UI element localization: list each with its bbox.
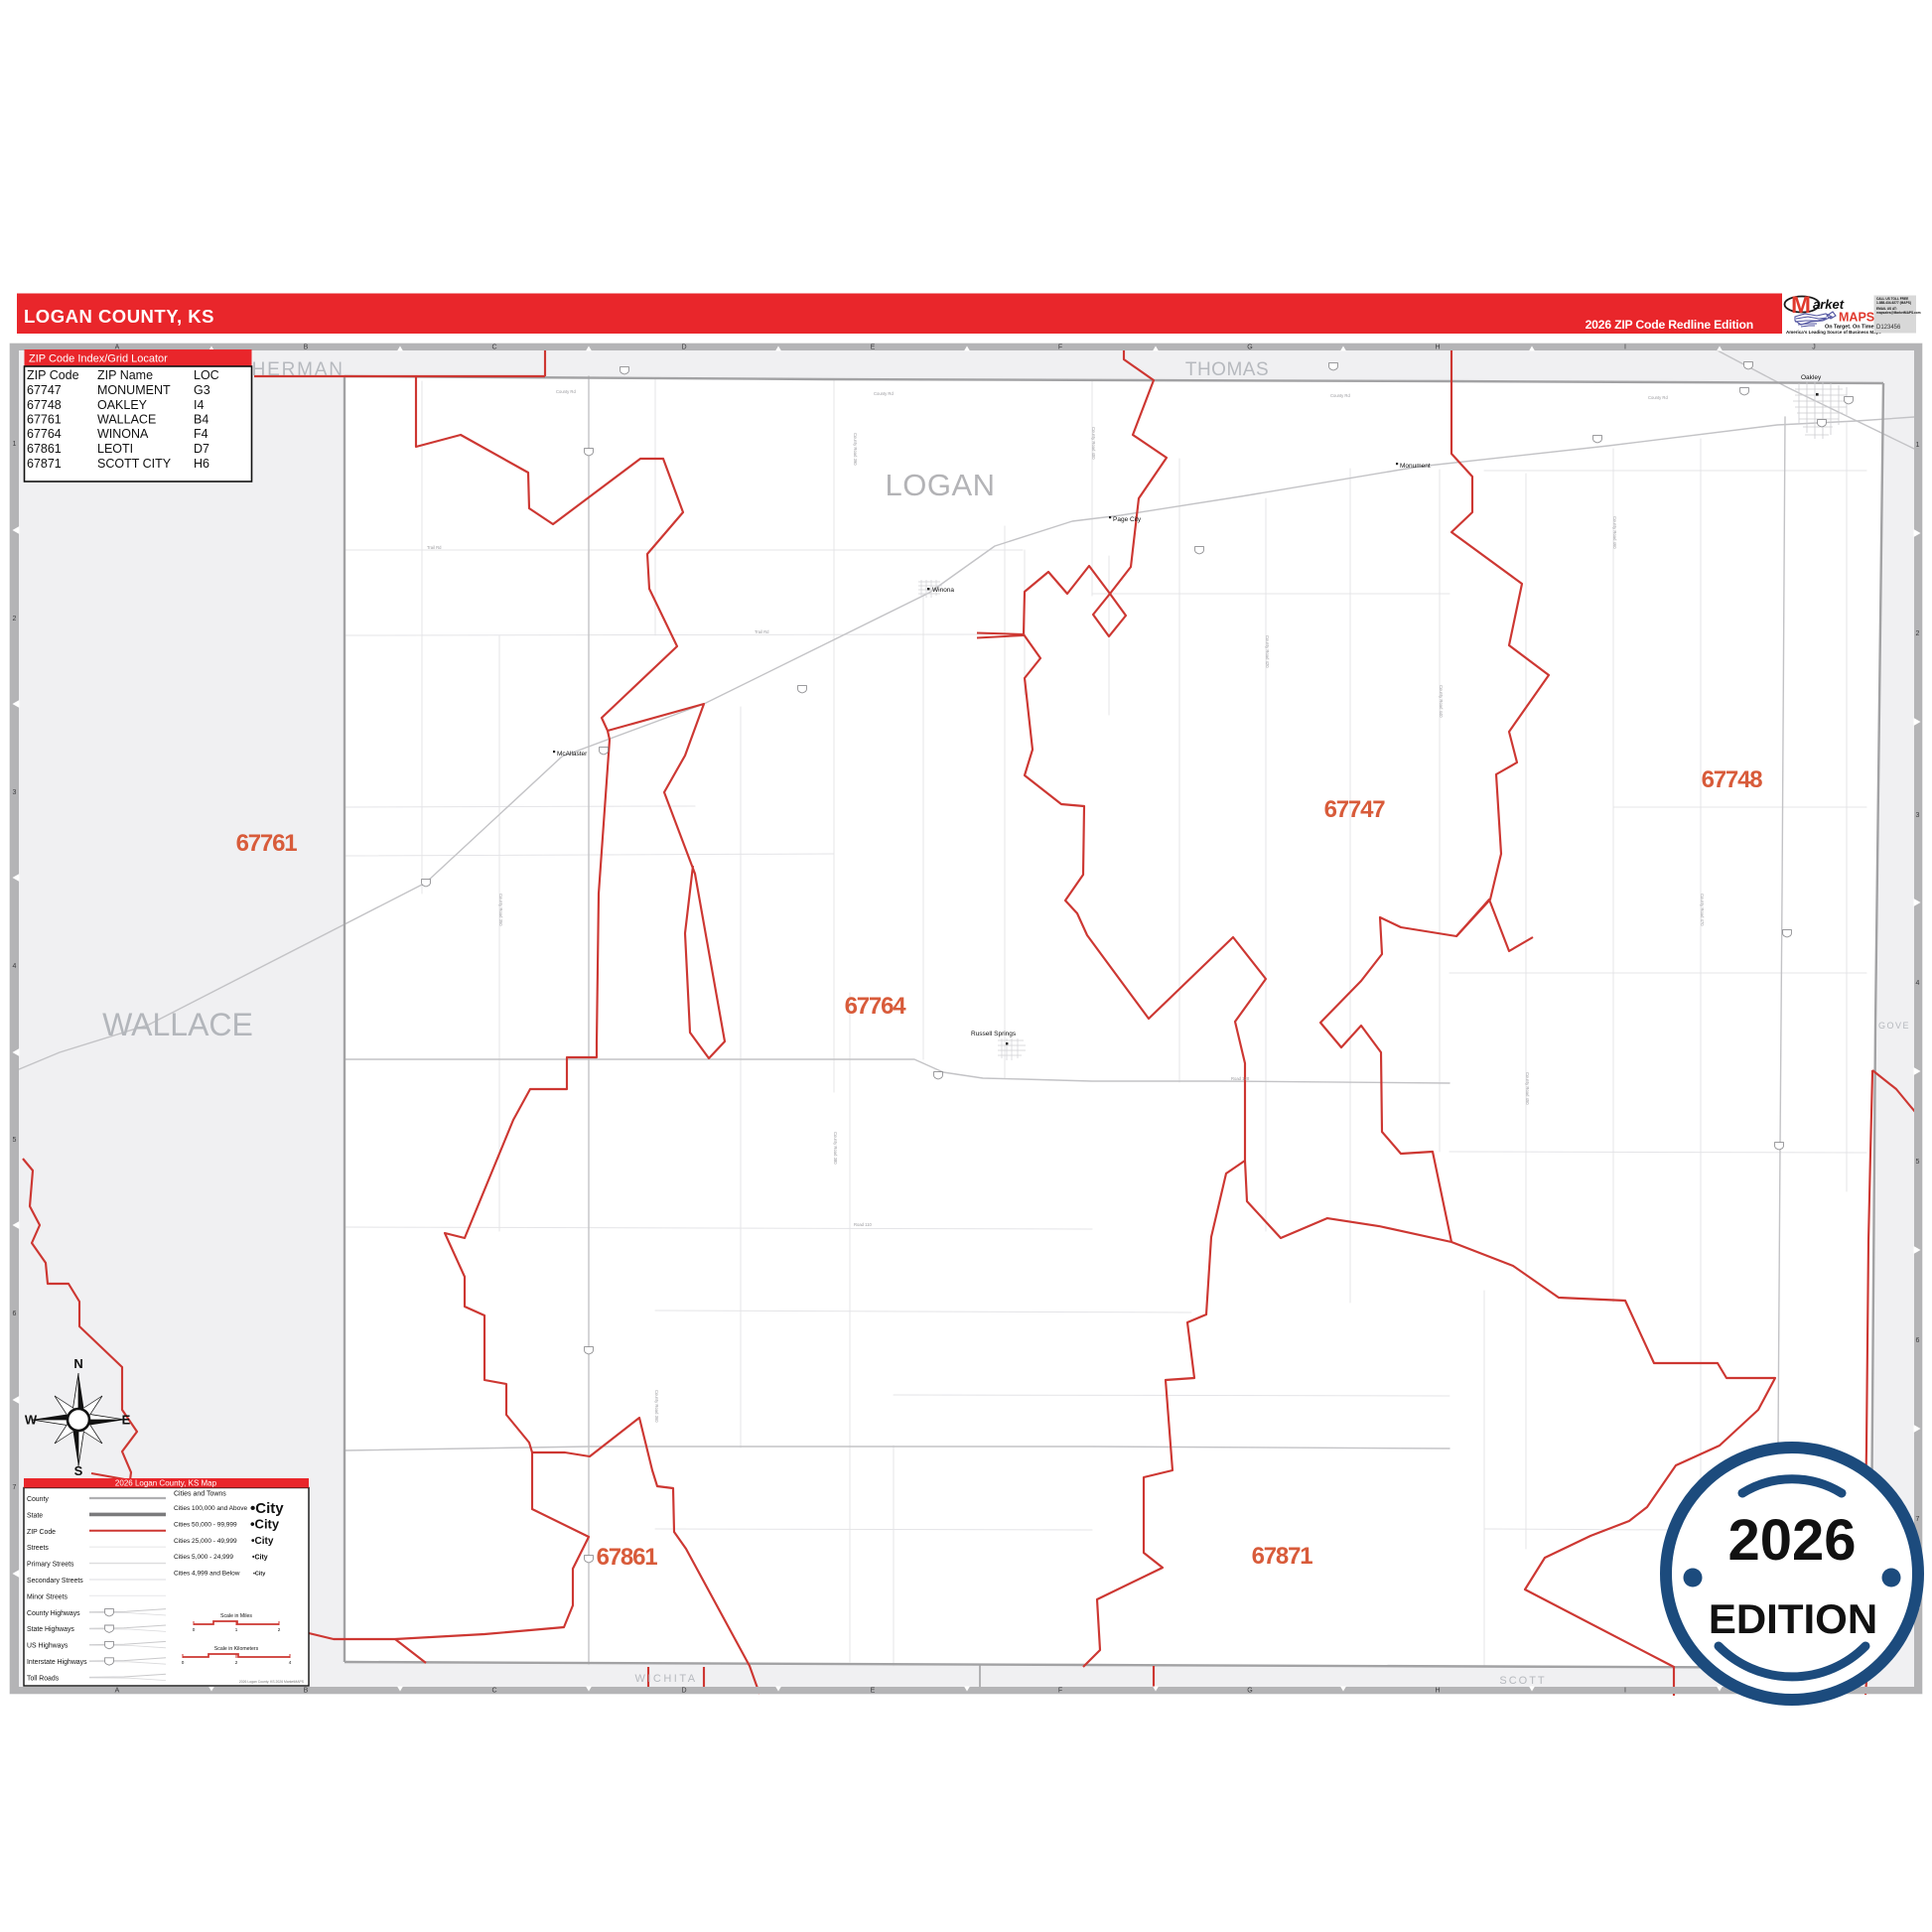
svg-text:1: 1 [235,1627,238,1632]
svg-text:County Road 360: County Road 360 [654,1390,659,1423]
svg-text:67871: 67871 [1252,1543,1313,1570]
svg-text:67871: 67871 [27,457,62,471]
svg-text:D: D [681,345,686,351]
svg-text:County Road 450: County Road 450 [1525,1072,1530,1105]
svg-text:I4: I4 [194,398,204,412]
svg-text:Scale in Miles: Scale in Miles [220,1613,252,1619]
svg-text:County Road 420: County Road 420 [1265,635,1270,668]
svg-text:SCOTT CITY: SCOTT CITY [97,457,172,471]
svg-text:6: 6 [1916,1337,1920,1344]
svg-text:E: E [871,345,876,351]
svg-text:1: 1 [1916,442,1920,449]
svg-text:2026 Logan County, KS Map: 2026 Logan County, KS Map [115,1479,217,1488]
svg-text:F4: F4 [194,427,208,441]
svg-text:67861: 67861 [27,442,62,456]
svg-text:Cities 4,999 and Below: Cities 4,999 and Below [174,1571,240,1578]
svg-text:2026 Logan County, KS 2026 Mar: 2026 Logan County, KS 2026 MarketMAPS [239,1680,305,1684]
svg-text:G3: G3 [194,383,210,397]
svg-text:Minor Streets: Minor Streets [27,1593,69,1600]
svg-text:Scale in Kilometers: Scale in Kilometers [214,1646,259,1652]
svg-text:E: E [122,1413,131,1428]
svg-text:4: 4 [1916,980,1920,987]
svg-text:2: 2 [278,1627,281,1632]
svg-text:D: D [681,1688,686,1695]
svg-text:A: A [115,1688,120,1695]
svg-text:MAPS: MAPS [1839,311,1874,325]
svg-text:State: State [27,1512,43,1519]
svg-text:J: J [1812,345,1816,351]
svg-text:MONUMENT: MONUMENT [97,383,171,397]
svg-text:County Road 390: County Road 390 [853,433,858,466]
svg-text:67764: 67764 [27,427,62,441]
svg-text:7: 7 [13,1484,17,1491]
svg-text:ZIP Code: ZIP Code [27,368,79,382]
svg-text:S: S [74,1463,83,1478]
svg-text:GOVE: GOVE [1878,1021,1910,1031]
svg-text:Cities and Towns: Cities and Towns [174,1491,226,1498]
svg-text:Road 110: Road 110 [854,1222,873,1227]
svg-text:2: 2 [13,616,17,622]
svg-text:2026: 2026 [1727,1508,1856,1573]
svg-text:H: H [1435,345,1440,351]
svg-text:County Rd: County Rd [556,389,576,394]
svg-text:County Rd: County Rd [1330,393,1350,398]
svg-text:C: C [491,1688,496,1695]
svg-text:Interstate Highways: Interstate Highways [27,1659,87,1666]
svg-text:C: C [491,345,496,351]
svg-text:Toll Roads: Toll Roads [27,1675,60,1682]
svg-text:B: B [304,1688,309,1695]
svg-text:County Road 400: County Road 400 [1091,427,1096,460]
svg-text:Trail Rd: Trail Rd [427,545,442,550]
svg-text:W: W [25,1413,38,1428]
svg-text:Streets: Streets [27,1545,49,1552]
svg-text:WALLACE: WALLACE [97,413,156,427]
svg-text:6: 6 [13,1311,17,1317]
svg-text:County Road 470: County Road 470 [1700,894,1705,926]
svg-text:Road 120: Road 120 [1231,1076,1250,1081]
svg-text:SCOTT: SCOTT [1499,1675,1546,1687]
svg-text:D7: D7 [194,442,209,456]
svg-text:67748: 67748 [1702,766,1763,793]
svg-text:5: 5 [13,1137,17,1144]
svg-text:67748: 67748 [27,398,62,412]
svg-text:ZIP Code Index/Grid Locator: ZIP Code Index/Grid Locator [29,353,168,365]
svg-text:Secondary Streets: Secondary Streets [27,1578,83,1585]
svg-text:Primary Streets: Primary Streets [27,1562,74,1569]
svg-text:•City: •City [251,1536,274,1547]
svg-text:N: N [73,1356,82,1371]
svg-text:LOGAN: LOGAN [885,468,995,502]
svg-text:Page City: Page City [1113,516,1142,523]
svg-text:•City: •City [252,1555,268,1562]
svg-text:Trail Rd: Trail Rd [755,629,769,634]
svg-text:0: 0 [193,1627,196,1632]
svg-text:3: 3 [13,789,17,796]
svg-text:D123456: D123456 [1876,325,1901,331]
svg-text:County Rd: County Rd [1648,395,1668,400]
svg-text:ZIP Name: ZIP Name [97,368,153,382]
svg-text:H: H [1435,1688,1440,1695]
svg-text:McAllaster: McAllaster [557,751,588,758]
svg-text:LEOTI: LEOTI [97,442,133,456]
svg-text:Cities 5,000 - 24,999: Cities 5,000 - 24,999 [174,1554,233,1561]
svg-text:67761: 67761 [27,413,62,427]
svg-text:THOMAS: THOMAS [1185,359,1269,380]
svg-text:Oakley: Oakley [1801,374,1822,381]
svg-text:G: G [1247,345,1252,351]
svg-text:67747: 67747 [27,383,62,397]
svg-text:EDITION: EDITION [1709,1595,1877,1642]
svg-text:67747: 67747 [1324,796,1386,823]
svg-text:F: F [1058,345,1062,351]
svg-text:mapsales@MarketMAPS.com: mapsales@MarketMAPS.com [1876,311,1921,315]
svg-text:I: I [1624,345,1626,351]
svg-text:3: 3 [1916,812,1920,819]
svg-text:America's Leading Source of B: America's Leading Source of Business Map… [1786,330,1881,335]
svg-text:1-888-434-6277 (MAPS): 1-888-434-6277 (MAPS) [1876,301,1911,305]
svg-text:G: G [1247,1688,1252,1695]
svg-text:County Road 380: County Road 380 [833,1132,838,1165]
svg-text:I: I [1624,1688,1626,1695]
svg-text:B: B [304,345,309,351]
svg-text:H6: H6 [194,457,209,471]
svg-text:OAKLEY: OAKLEY [97,398,148,412]
svg-text:Russell Springs: Russell Springs [971,1031,1017,1037]
svg-text:E: E [871,1688,876,1695]
svg-text:LOC: LOC [194,368,219,382]
svg-text:2: 2 [1916,630,1920,637]
svg-text:County Highways: County Highways [27,1610,80,1617]
svg-text:WINONA: WINONA [97,427,149,441]
svg-text:County: County [27,1496,49,1503]
svg-text:5: 5 [1916,1159,1920,1166]
svg-text:67861: 67861 [597,1544,658,1571]
svg-text:Cities 25,000 - 49,999: Cities 25,000 - 49,999 [174,1538,237,1545]
svg-text:ZIP Code: ZIP Code [27,1529,56,1536]
svg-text:US Highways: US Highways [27,1643,69,1650]
svg-text:Cities 100,000 and Above: Cities 100,000 and Above [174,1505,247,1512]
svg-text:1: 1 [13,441,17,448]
svg-text:4: 4 [289,1660,292,1665]
svg-text:County Road 460: County Road 460 [1612,516,1617,549]
svg-text:•City: •City [250,1500,284,1517]
svg-text:7: 7 [1916,1516,1920,1523]
svg-text:2: 2 [235,1660,238,1665]
svg-text:Monument: Monument [1400,463,1431,470]
svg-text:State Highways: State Highways [27,1626,74,1633]
svg-text:SHERMAN: SHERMAN [237,359,345,380]
svg-text:County Road 350: County Road 350 [498,894,503,926]
svg-text:F: F [1058,1688,1062,1695]
svg-text:4: 4 [13,963,17,970]
svg-text:67761: 67761 [236,830,298,857]
svg-text:WALLACE: WALLACE [102,1007,253,1042]
svg-text:•City: •City [253,1572,266,1578]
svg-text:County Rd: County Rd [874,391,894,396]
svg-text:Cities 50,000 - 99,999: Cities 50,000 - 99,999 [174,1521,237,1528]
svg-text:WICHITA: WICHITA [634,1673,697,1685]
svg-text:County Road 440: County Road 440 [1439,685,1444,718]
svg-text:2026 ZIP Code Redline Edition: 2026 ZIP Code Redline Edition [1586,318,1753,332]
svg-text:LOGAN COUNTY, KS: LOGAN COUNTY, KS [24,306,214,327]
svg-text:Winona: Winona [932,587,954,594]
svg-text:0: 0 [182,1660,185,1665]
svg-text:67764: 67764 [845,993,907,1020]
svg-text:M: M [1791,292,1811,319]
svg-text:•City: •City [250,1516,280,1531]
svg-text:B4: B4 [194,413,208,427]
